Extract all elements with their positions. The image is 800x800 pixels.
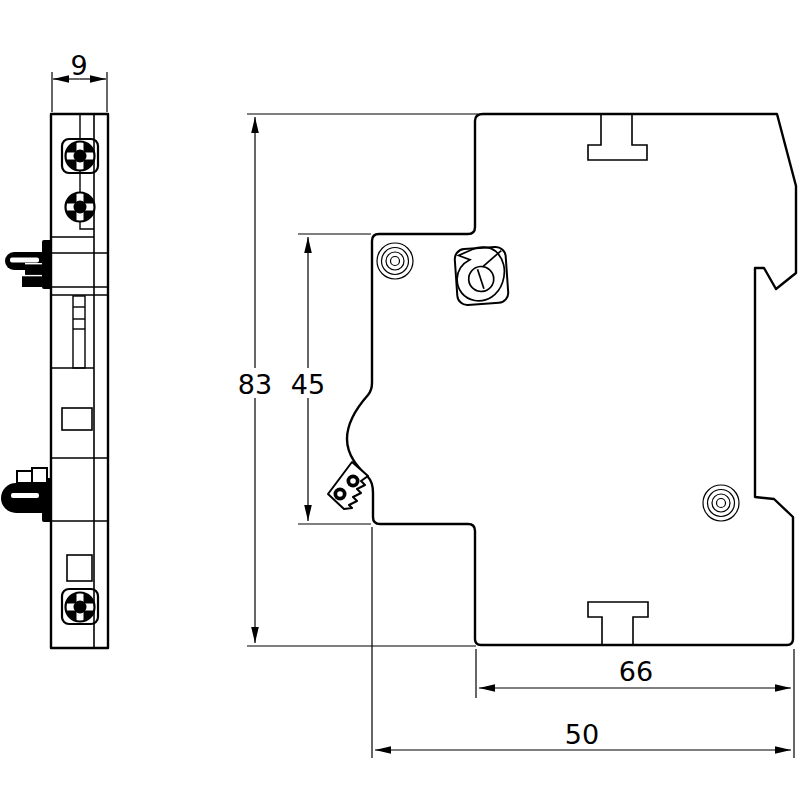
dim-total-depth-value: 50	[565, 719, 599, 750]
side-view: 83 45 66 50	[238, 114, 796, 758]
terminal-screw-middle	[65, 192, 95, 222]
actuator-knob	[454, 246, 509, 306]
terminal-pin-upper	[5, 240, 52, 289]
dimension-width-9: 9	[52, 50, 107, 112]
terminal-pin-lower	[1, 468, 52, 522]
dimension-front-height-45: 45	[291, 237, 325, 521]
dim-width-value: 9	[70, 50, 87, 81]
dim-height-value: 83	[238, 369, 272, 400]
dimension-drawing: 9	[0, 0, 800, 800]
front-view: 9	[1, 50, 108, 648]
technical-drawing-canvas: 9	[0, 0, 800, 800]
dimension-height-83: 83	[238, 117, 272, 643]
dim-body-depth-value: 66	[619, 656, 653, 687]
dimension-body-depth-66: 66	[476, 649, 794, 758]
dim-front-height-value: 45	[291, 369, 325, 400]
side-view-body-outline	[347, 114, 796, 645]
